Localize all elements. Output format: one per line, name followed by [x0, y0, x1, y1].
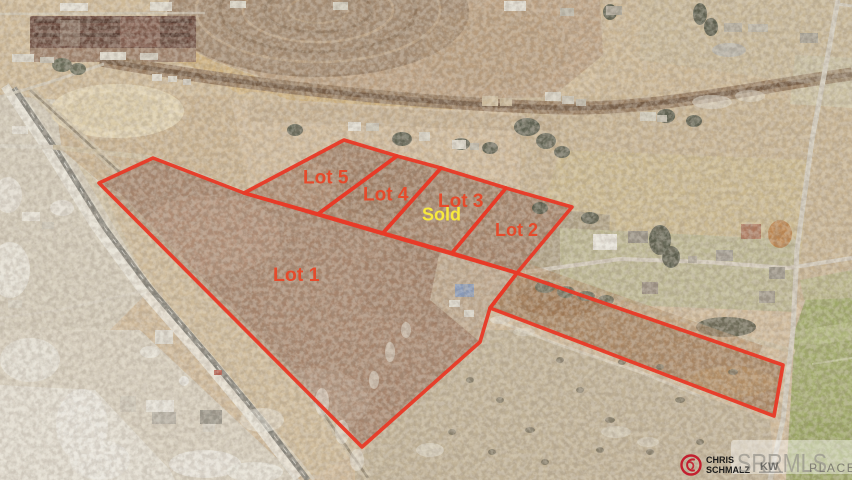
svg-text:Sold: Sold: [422, 205, 461, 225]
svg-text:Lot 5: Lot 5: [303, 168, 349, 189]
svg-text:Lot 1: Lot 1: [273, 264, 320, 286]
svg-text:Lot 2: Lot 2: [495, 220, 538, 240]
svg-text:KW: KW: [760, 461, 779, 473]
svg-text:PLACE: PLACE: [809, 461, 852, 475]
svg-text:Lot 4: Lot 4: [363, 185, 409, 206]
svg-text:CHRIS: CHRIS: [706, 455, 734, 465]
